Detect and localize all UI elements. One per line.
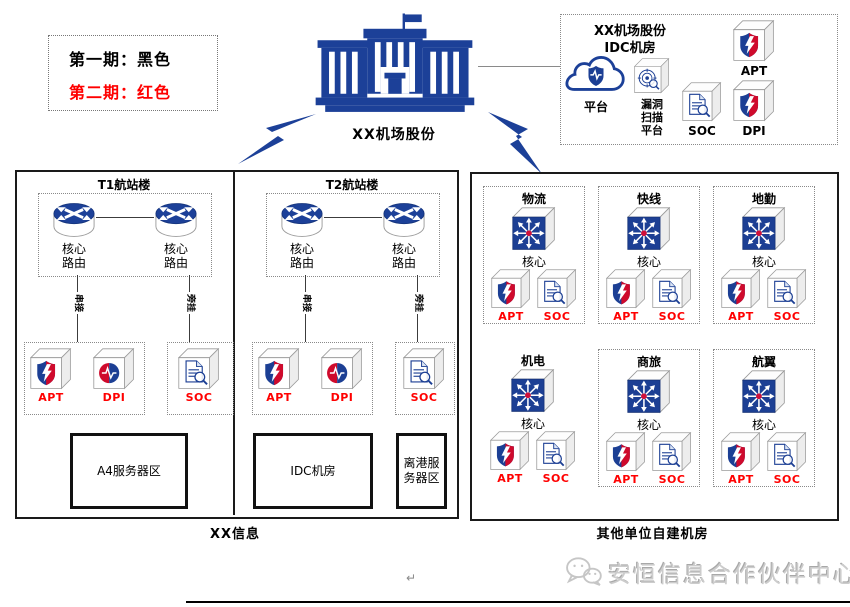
t1-router-1-label-l1: 核心 (50, 242, 98, 256)
t2-router-2-label-l2: 路由 (380, 256, 428, 270)
unit-0-core-label: 核心 (484, 253, 584, 270)
left-panel-footer: XX信息 (15, 523, 455, 542)
cloud-platform-label: 平台 (568, 98, 624, 115)
t2-departure-server-room: 离港服务器区 (396, 433, 447, 509)
t1-dpi-label: DPI (92, 391, 136, 404)
apt-shield-icon (606, 269, 646, 309)
unit-1-title: 快线 (599, 190, 699, 207)
unit-0-apt-device: APT (490, 269, 532, 323)
unit-0-soc-device: SOC (536, 269, 578, 323)
legend-box: 第一期：黑色 第二期：红色 (48, 35, 218, 111)
phase1-label: 第一期： (69, 50, 137, 69)
unit-5-soc-label: SOC (766, 473, 808, 486)
t1-router-2-label-l2: 路由 (152, 256, 200, 270)
soc-doc-icon (767, 432, 807, 472)
t1-core-router-2-icon (152, 199, 200, 241)
soc-doc-icon (767, 269, 807, 309)
paragraph-return-mark: ↵ (406, 571, 416, 585)
soc-doc-icon (403, 348, 445, 390)
bottom-divider (186, 601, 850, 603)
t2-router-2-label-l1: 核心 (380, 242, 428, 256)
unit-box-1: 快线 核心 APT SOC (598, 186, 700, 324)
phase1-value: 黑色 (137, 50, 171, 69)
unit-4-soc-label: SOC (651, 473, 693, 486)
t2-title: T2航站楼 (266, 176, 438, 193)
government-building-icon (308, 12, 480, 122)
unit-1-soc-device: SOC (651, 269, 693, 323)
dpi-pulse-icon (93, 348, 135, 390)
dpi-pulse-icon (321, 348, 363, 390)
t1-apt-device: APT (29, 348, 73, 404)
idc-soc-label: SOC (682, 124, 722, 138)
legend-phase1: 第一期：黑色 (69, 46, 217, 70)
t2-soc-label: SOC (402, 391, 446, 404)
t1-router-2-label-l1: 核心 (152, 242, 200, 256)
t2-dpi-label: DPI (320, 391, 364, 404)
unit-3-soc-device: SOC (535, 431, 577, 485)
unit-0-apt-label: APT (490, 310, 532, 323)
t1-router-1-label-l2: 路由 (50, 256, 98, 270)
vuln-scan-platform-icon (634, 58, 670, 94)
core-switch-icon (627, 207, 671, 251)
unit-2-core-label: 核心 (714, 253, 814, 270)
hq-idc-connector-line (478, 66, 560, 67)
t2-router-1-label: 核心 路由 (278, 242, 326, 270)
t2-router-link-line (324, 217, 382, 218)
apt-shield-icon (606, 432, 646, 472)
unit-2-apt-label: APT (720, 310, 762, 323)
unit-2-soc-device: SOC (766, 269, 808, 323)
hq-label: XX机场股份 (308, 124, 480, 144)
unit-4-soc-device: SOC (651, 432, 693, 486)
unit-4-title: 商旅 (599, 353, 699, 370)
t2-apt-label: APT (257, 391, 301, 404)
core-switch-icon (742, 207, 786, 251)
t1-router-link-line (96, 217, 154, 218)
t2-link-label-left: 串接 (300, 292, 312, 314)
watermark-text: 安恒信息合作伙伴中心 (608, 555, 850, 589)
unit-5-apt-label: APT (720, 473, 762, 486)
t1-link-label-left: 串接 (72, 292, 84, 314)
unit-4-apt-device: APT (605, 432, 647, 486)
t1-link-label-right: 旁挂 (184, 292, 196, 314)
unit-0-title: 物流 (484, 190, 584, 207)
t1-router-1-label: 核心 路由 (50, 242, 98, 270)
soc-doc-icon (537, 269, 577, 309)
right-panel-footer: 其他单位自建机房 (470, 523, 835, 542)
unit-4-core-label: 核心 (599, 416, 699, 433)
idc-soc-icon (682, 82, 722, 122)
unit-3-apt-label: APT (489, 472, 531, 485)
unit-box-3: 机电 核心 APT SOC (483, 349, 583, 485)
unit-1-apt-device: APT (605, 269, 647, 323)
unit-1-core-label: 核心 (599, 253, 699, 270)
unit-box-0: 物流 核心 APT SOC (483, 186, 585, 324)
t2-router-1-label-l2: 路由 (278, 256, 326, 270)
cloud-platform-icon (565, 48, 627, 97)
core-switch-icon (742, 370, 786, 414)
t2-soc-device: SOC (402, 348, 446, 404)
t1-soc-device: SOC (177, 348, 221, 404)
t2-idc-room: IDC机房 (253, 433, 373, 509)
t2-link-label-right: 旁挂 (412, 292, 424, 314)
unit-1-apt-label: APT (605, 310, 647, 323)
diagram-canvas: 第一期：黑色 第二期：红色 XX机场股份 XX机场股份 IDC机房 平台 漏洞 … (0, 0, 850, 607)
idc-apt-label: APT (733, 64, 775, 78)
t2-apt-device: APT (257, 348, 301, 404)
t1-router-2-label: 核心 路由 (152, 242, 200, 270)
idc-apt-icon (733, 20, 775, 62)
core-switch-icon (627, 370, 671, 414)
soc-doc-icon (536, 431, 576, 471)
core-switch-icon (511, 369, 555, 413)
vuln-scan-label-3: 平台 (634, 122, 670, 138)
t2-core-router-1-icon (278, 199, 326, 241)
t1-server-room-a4: A4服务器区 (70, 433, 188, 509)
t2-dpi-device: DPI (320, 348, 364, 404)
unit-1-soc-label: SOC (651, 310, 693, 323)
apt-shield-icon (30, 348, 72, 390)
t1-apt-label: APT (29, 391, 73, 404)
t2-core-router-2-icon (380, 199, 428, 241)
unit-box-2: 地勤 核心 APT SOC (713, 186, 815, 324)
t1-dpi-device: DPI (92, 348, 136, 404)
idc-dpi-label: DPI (733, 124, 775, 138)
unit-3-title: 机电 (483, 352, 583, 369)
unit-3-core-label: 核心 (483, 415, 583, 432)
soc-doc-icon (652, 432, 692, 472)
apt-shield-icon (721, 432, 761, 472)
idc-dpi-icon (733, 80, 775, 122)
wechat-icon (564, 556, 602, 586)
apt-shield-icon (258, 348, 300, 390)
unit-3-apt-device: APT (489, 431, 531, 485)
unit-3-soc-label: SOC (535, 472, 577, 485)
legend-phase2: 第二期：红色 (69, 79, 217, 103)
phase2-label: 第二期： (69, 83, 137, 102)
phase2-value: 红色 (137, 83, 171, 102)
apt-shield-icon (491, 269, 531, 309)
unit-0-soc-label: SOC (536, 310, 578, 323)
lightning-bolt-left-icon (238, 114, 316, 166)
core-switch-icon (512, 207, 556, 251)
unit-box-5: 航翼 核心 APT SOC (713, 349, 815, 487)
unit-2-title: 地勤 (714, 190, 814, 207)
lightning-bolt-right-icon (486, 112, 542, 176)
t2-router-2-label: 核心 路由 (380, 242, 428, 270)
t2-router-1-label-l1: 核心 (278, 242, 326, 256)
unit-4-apt-label: APT (605, 473, 647, 486)
t1-title: T1航站楼 (38, 176, 210, 193)
unit-5-title: 航翼 (714, 353, 814, 370)
unit-2-soc-label: SOC (766, 310, 808, 323)
apt-shield-icon (490, 431, 530, 471)
t1-core-router-1-icon (50, 199, 98, 241)
unit-2-apt-device: APT (720, 269, 762, 323)
t1-soc-label: SOC (177, 391, 221, 404)
soc-doc-icon (652, 269, 692, 309)
apt-shield-icon (721, 269, 761, 309)
unit-5-apt-device: APT (720, 432, 762, 486)
unit-5-soc-device: SOC (766, 432, 808, 486)
unit-box-4: 商旅 核心 APT SOC (598, 349, 700, 487)
unit-5-core-label: 核心 (714, 416, 814, 433)
soc-doc-icon (178, 348, 220, 390)
